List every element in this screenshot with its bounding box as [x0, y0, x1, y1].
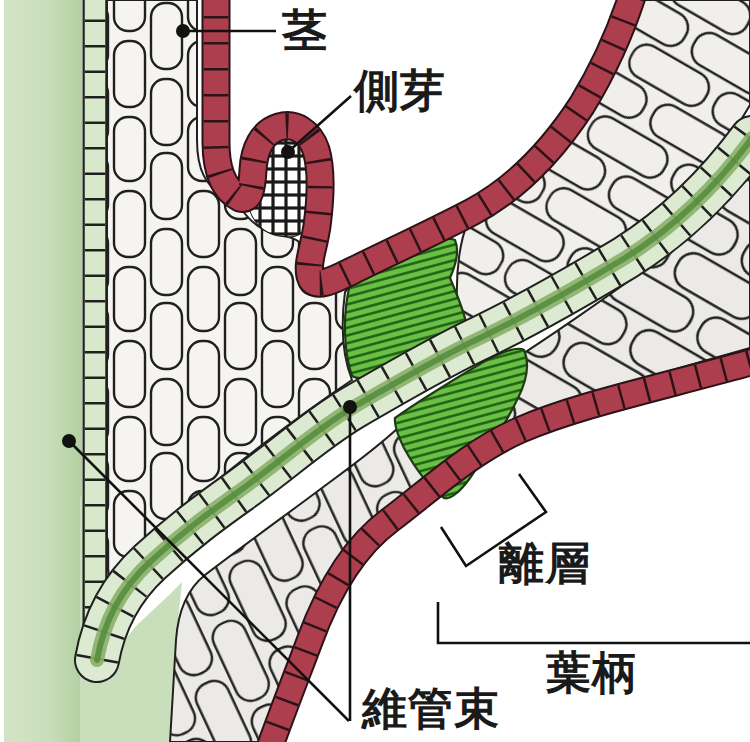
label-petiole: 葉柄 — [546, 650, 638, 695]
stem-pointer-dot — [176, 24, 190, 38]
label-lateral-bud: 側芽 — [354, 68, 446, 113]
stem-ground-band — [4, 0, 82, 742]
label-stem: 茎 — [282, 8, 328, 53]
lateral-bud-pointer-dot — [281, 145, 295, 159]
label-vascular-bundle: 維管束 — [362, 686, 500, 731]
leaf-vascular-pointer-dot — [343, 400, 357, 414]
label-abscission-layer: 離層 — [499, 541, 591, 586]
diagram-leaf-abscission: 茎 側芽 離層 葉柄 維管束 — [0, 0, 750, 742]
stem-vascular-pointer-dot — [62, 434, 76, 448]
